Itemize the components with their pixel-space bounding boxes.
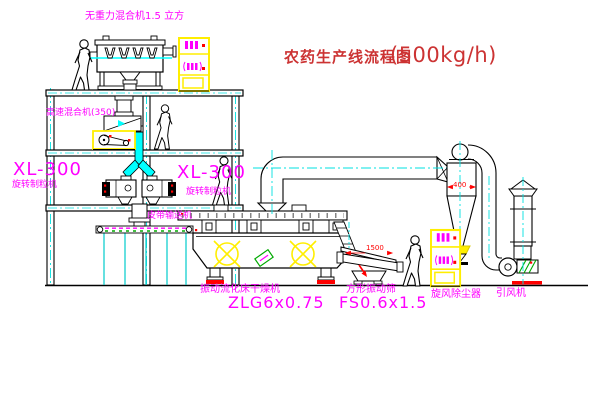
label-granulator-left-model: XL-300 bbox=[13, 161, 82, 180]
label-granulator-right-name: 旋转制粒机 bbox=[186, 188, 231, 197]
dimension-screen-length: 1500 bbox=[366, 245, 384, 252]
person-top-floor bbox=[72, 40, 92, 90]
label-fan: 引风机 bbox=[496, 289, 526, 300]
label-granulator-left-name: 旋转制粒机 bbox=[12, 181, 57, 190]
granulator-left bbox=[102, 176, 136, 204]
granulator-right bbox=[142, 176, 176, 204]
diagram-title-capacity: (500kg/h) bbox=[390, 44, 497, 66]
vibrating-screen bbox=[337, 247, 403, 284]
control-cabinet-top bbox=[179, 38, 209, 91]
flow-diagram-canvas: 无重力混合机1.5 立方 农药生产线流程图 (500kg/h) 高速混合机(35… bbox=[0, 0, 600, 403]
gravity-free-mixer bbox=[88, 36, 176, 90]
dimension-cyclone-width: 400 bbox=[453, 182, 466, 189]
high-speed-mixer bbox=[93, 116, 141, 150]
label-gravity-mixer: 无重力混合机1.5 立方 bbox=[85, 12, 184, 23]
label-high-speed-mixer: 高速混合机(350) bbox=[46, 109, 115, 118]
control-cabinet-ground bbox=[431, 230, 460, 286]
label-dryer-model: ZLG6x0.75 bbox=[228, 295, 325, 312]
mixer-down-pipe bbox=[115, 96, 133, 117]
label-cyclone: 旋风除尘器 bbox=[431, 290, 481, 301]
fluid-bed-dryer bbox=[178, 205, 347, 284]
induced-draft-fan bbox=[499, 246, 542, 285]
person-ground-floor bbox=[403, 236, 423, 286]
person-second-floor bbox=[154, 105, 172, 149]
label-belt-conveyor: 皮带输送机 bbox=[147, 212, 192, 221]
exhaust-duct bbox=[253, 150, 452, 216]
label-granulator-right-model: XL-300 bbox=[177, 164, 246, 183]
label-screen-model: FS0.6x1.5 bbox=[339, 295, 427, 312]
